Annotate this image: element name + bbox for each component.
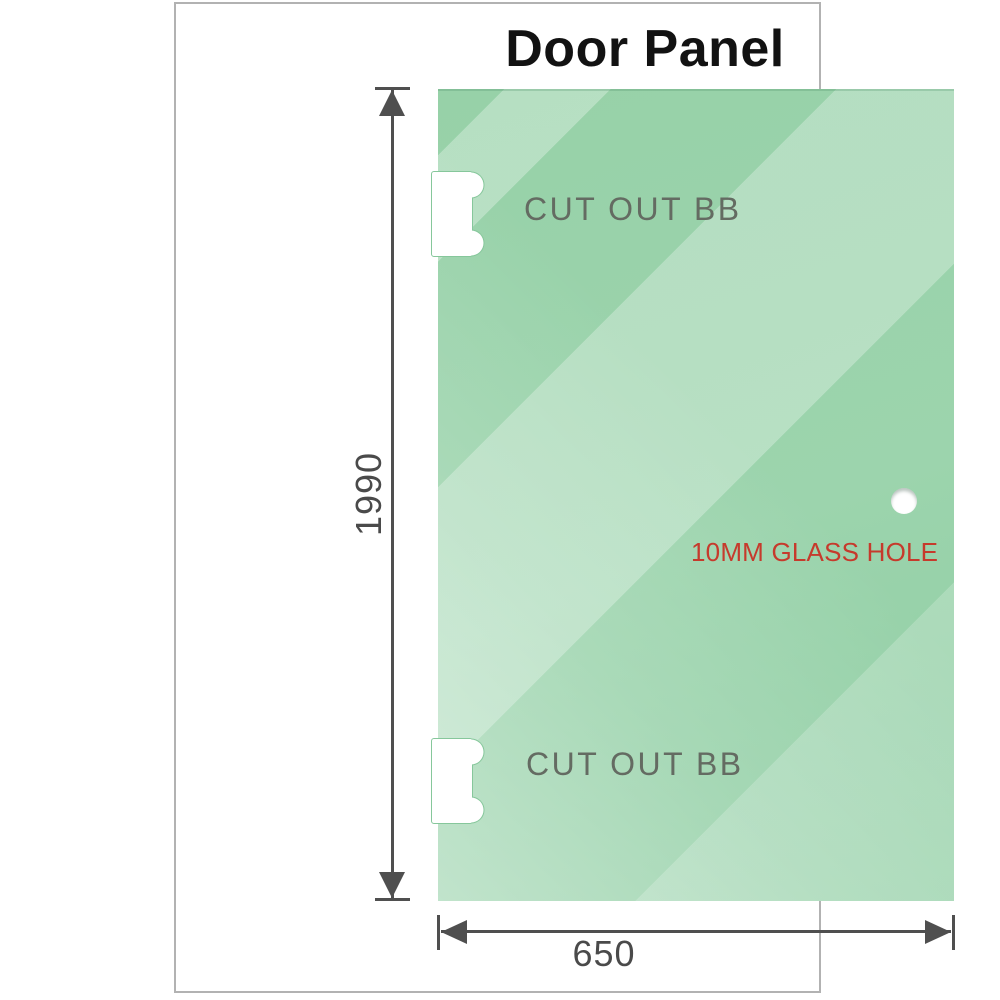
height-dimension-line	[391, 90, 394, 900]
cutout-bb-bottom-shape	[438, 738, 488, 824]
cutout-top-label: CUT OUT BB	[524, 191, 742, 228]
cutout-bottom-label: CUT OUT BB	[526, 746, 744, 783]
width-dimension-line	[441, 930, 951, 933]
width-dimension-label: 650	[572, 933, 635, 975]
width-extension-line-left	[437, 915, 440, 950]
arrowhead-down-icon	[379, 872, 405, 898]
glass-hole	[891, 488, 917, 514]
spec-sheet: Door Panel	[0, 0, 1000, 1000]
glass-hole-label: 10MM GLASS HOLE	[691, 537, 938, 568]
drawing-frame: Door Panel	[174, 2, 821, 993]
arrowhead-up-icon	[379, 90, 405, 116]
arrowhead-left-icon	[441, 920, 467, 944]
page-title: Door Panel	[505, 19, 785, 79]
height-dimension-label: 1990	[348, 452, 390, 536]
arrowhead-right-icon	[925, 920, 951, 944]
glass-panel: CUT OUT BB CUT OUT BB 10MM GLASS HOLE	[438, 89, 954, 901]
cutout-bb-top-shape	[438, 171, 488, 257]
width-extension-line-right	[952, 915, 955, 950]
